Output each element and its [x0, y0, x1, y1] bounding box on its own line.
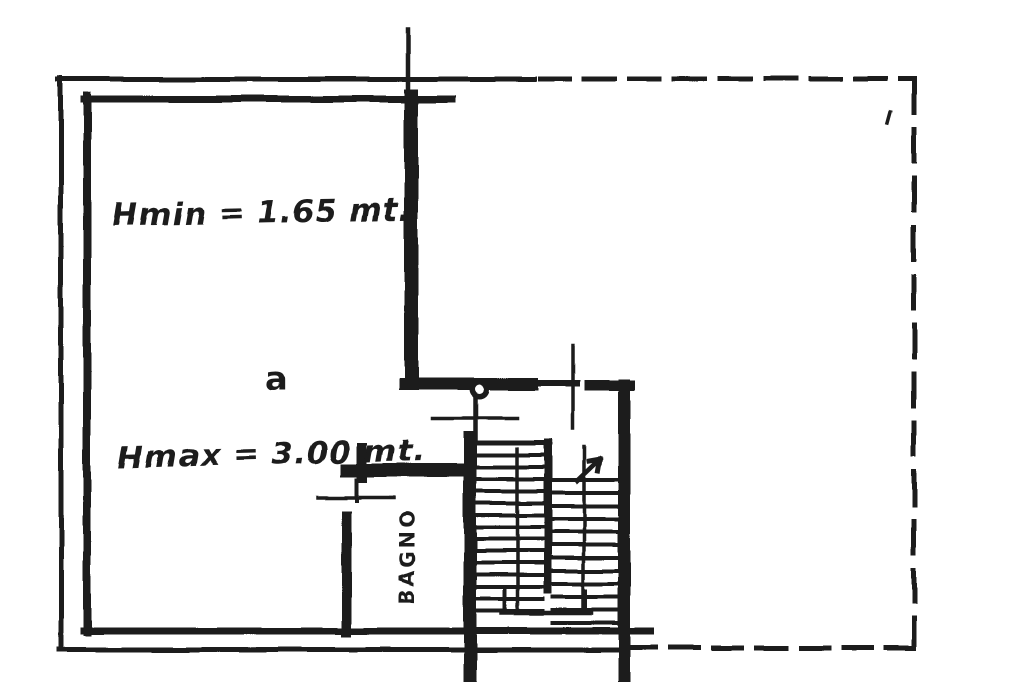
floor-plan-sheet: Hmin = 1.65 mt. Hmax = 3.00 mt. a BAGNO: [0, 0, 1024, 682]
bathroom-walls: [318, 447, 468, 632]
hinge-post-inner: [475, 385, 484, 394]
boundary-tick-mark: [887, 112, 890, 123]
room-walls: [84, 96, 651, 632]
room-letter-label: a: [266, 359, 288, 398]
hmin-label: Hmin = 1.65 mt.: [111, 192, 411, 234]
floor-plan-canvas: Hmin = 1.65 mt. Hmax = 3.00 mt. a BAGNO: [0, 0, 1024, 682]
bagno-label: BAGNO: [395, 508, 419, 604]
partition-wall: [405, 96, 630, 385]
door-marks: [433, 346, 573, 443]
plan-labels: Hmin = 1.65 mt. Hmax = 3.00 mt. a BAGNO: [111, 192, 426, 604]
stair-treads-left-flight: [478, 455, 543, 611]
stair-direction-arrow: [577, 459, 600, 481]
staircase: [470, 385, 624, 682]
